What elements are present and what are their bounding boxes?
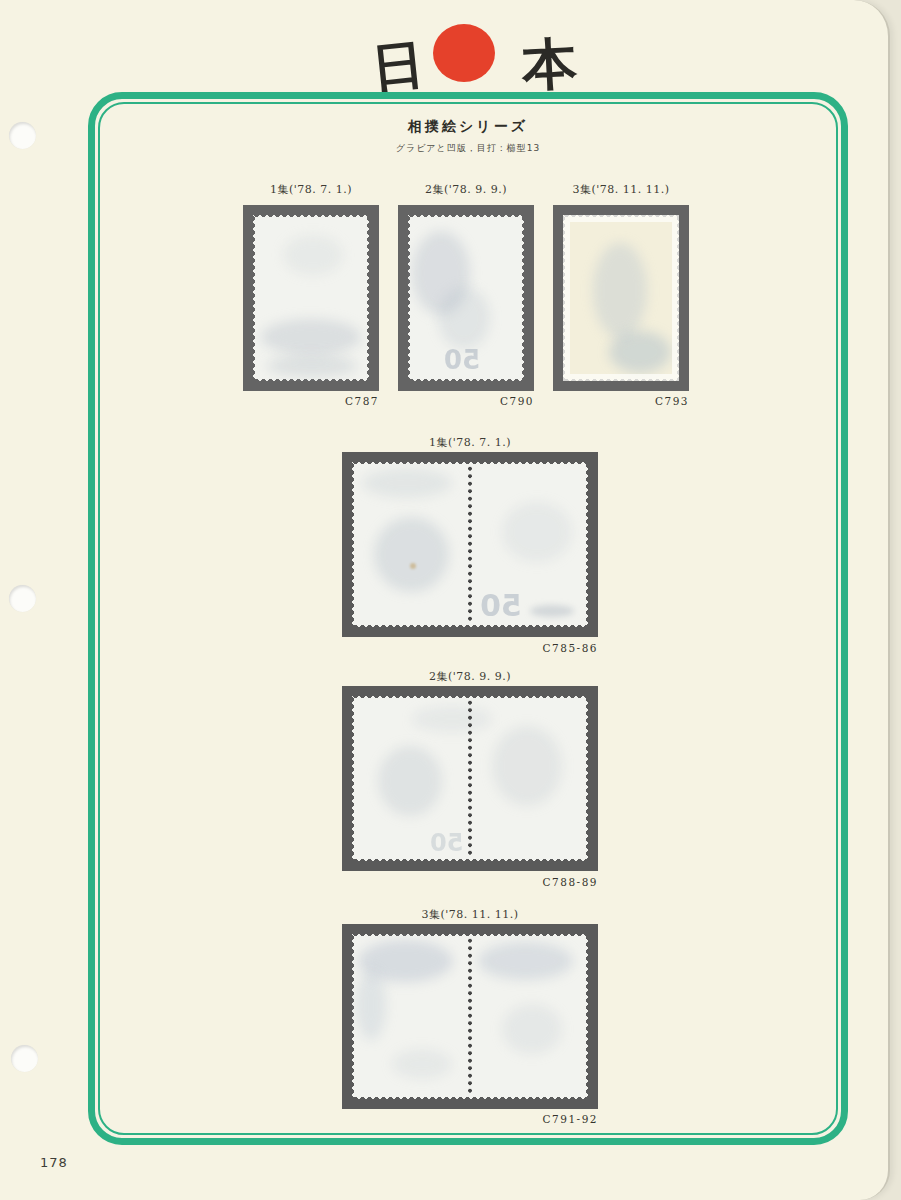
- ghost-impression: [267, 355, 357, 377]
- stamp-back-c785-86: 50: [352, 462, 588, 627]
- binder-hole-bottom: [11, 1045, 38, 1072]
- stamp-mount-single-1: [243, 205, 379, 391]
- ghost-impression: [412, 706, 492, 732]
- logo-character-right: 本: [521, 35, 579, 93]
- rising-sun-icon: [433, 24, 495, 82]
- stamp-back-c793: [563, 215, 679, 381]
- stamp-mount-single-2: 50: [398, 205, 534, 391]
- ghost-impression: [283, 235, 343, 275]
- logo-character-left: 日: [369, 37, 426, 94]
- ghost-denomination: 50: [430, 831, 463, 855]
- single-stamp-label-2: 2集('78. 9. 9.): [398, 182, 534, 197]
- binder-hole-top: [9, 122, 36, 149]
- stamp-mount-pair-3: [342, 924, 598, 1109]
- pair-stamp-label-3: 3集('78. 11. 11.): [342, 907, 598, 922]
- stamp-back-c790: 50: [408, 215, 524, 381]
- ghost-impression: [356, 970, 386, 1040]
- stamp-back-c791-92: [352, 934, 588, 1099]
- catalog-number-c791-92: C791-92: [342, 1113, 598, 1125]
- stamp-mount-pair-2: 50: [342, 686, 598, 871]
- catalog-number-c787: C787: [243, 395, 379, 407]
- ghost-impression: [374, 517, 449, 592]
- stamp-back-c788-89: 50: [352, 696, 588, 861]
- pair-perforation-line: [467, 465, 473, 624]
- series-title: 相撲絵シリーズ: [88, 118, 848, 136]
- catalog-number-c788-89: C788-89: [342, 876, 598, 888]
- catalog-number-c790: C790: [398, 395, 534, 407]
- stamp-mount-pair-1: 50: [342, 452, 598, 637]
- pair-stamp-label-1: 1集('78. 7. 1.): [342, 435, 598, 450]
- single-stamp-label-3: 3集('78. 11. 11.): [553, 182, 689, 197]
- ghost-impression: [378, 746, 442, 816]
- page-number: 178: [40, 1155, 68, 1170]
- ghost-impression: [478, 942, 573, 980]
- ghost-denomination: 50: [480, 591, 522, 621]
- ghost-denomination: 50: [444, 347, 480, 373]
- ghost-speck: [410, 563, 416, 569]
- catalog-number-c793: C793: [553, 395, 689, 407]
- pair-perforation-line: [467, 699, 473, 858]
- ghost-impression: [502, 1004, 562, 1054]
- pair-perforation-line: [467, 937, 473, 1096]
- ghost-impression: [392, 1049, 452, 1079]
- ghost-impression: [362, 468, 452, 498]
- ghost-impression: [492, 726, 562, 806]
- single-stamp-label-1: 1集('78. 7. 1.): [243, 182, 379, 197]
- ghost-impression: [261, 319, 361, 355]
- binder-hole-middle: [9, 585, 36, 612]
- pair-stamp-label-2: 2集('78. 9. 9.): [342, 669, 598, 684]
- stamp-white-margin: [563, 215, 679, 381]
- album-page: 日 本 相撲絵シリーズ グラビアと凹版，目打：櫛型13 1集('78. 7. 1…: [0, 0, 890, 1200]
- series-subtitle: グラビアと凹版，目打：櫛型13: [88, 142, 848, 155]
- stamp-back-c787: [253, 215, 369, 381]
- catalog-number-c785-86: C785-86: [342, 642, 598, 654]
- stamp-mount-single-3: [553, 205, 689, 391]
- ghost-impression: [502, 502, 572, 562]
- ghost-impression: [438, 287, 490, 349]
- ghost-inscription: [530, 605, 574, 617]
